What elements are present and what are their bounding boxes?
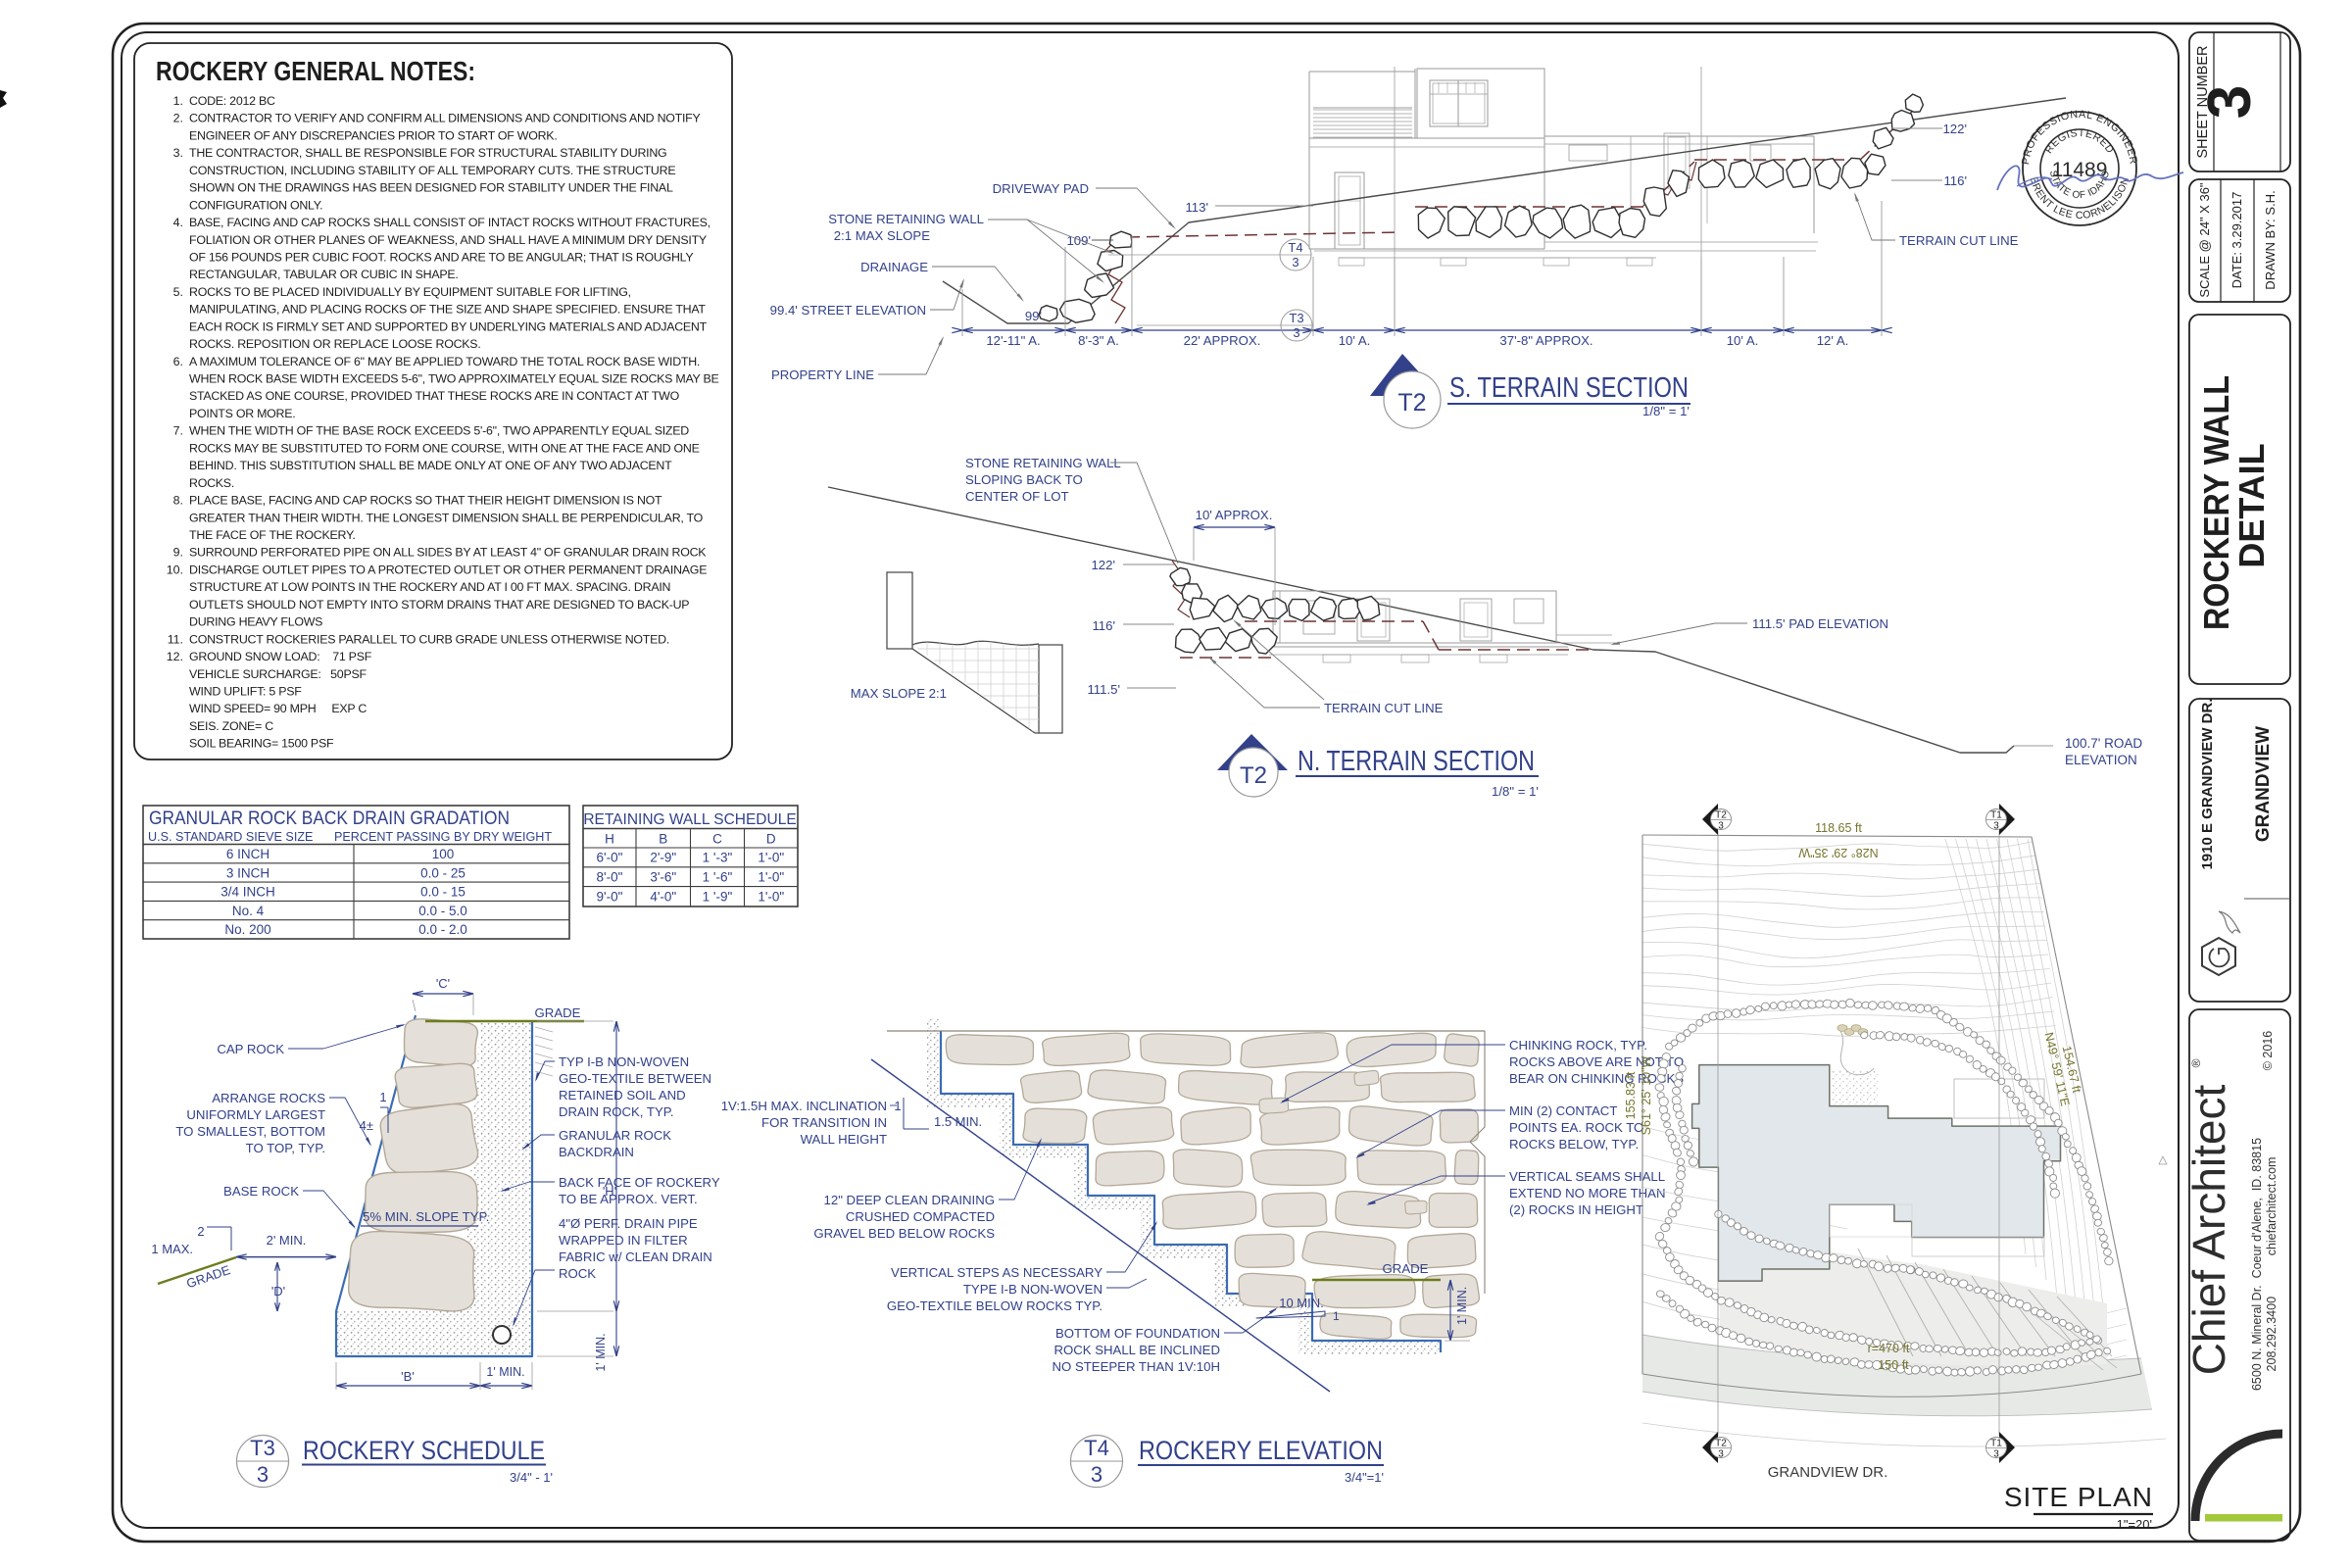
svg-text:SCALE @ 24" X 36": SCALE @ 24" X 36" [2197, 182, 2212, 297]
svg-text:© 2016: © 2016 [2261, 1031, 2275, 1071]
svg-text:BOTTOM OF FOUNDATION: BOTTOM OF FOUNDATION [1055, 1326, 1220, 1341]
svg-text:PERCENT PASSING BY DRY WEIGHT: PERCENT PASSING BY DRY WEIGHT [334, 830, 552, 844]
svg-text:1/8" = 1': 1/8" = 1' [1642, 404, 1690, 418]
svg-text:CAP ROCK: CAP ROCK [217, 1042, 284, 1056]
svg-text:122': 122' [1942, 122, 1967, 136]
svg-text:10' APPROX.: 10' APPROX. [1196, 508, 1273, 522]
svg-text:MIN (2) CONTACT: MIN (2) CONTACT [1509, 1103, 1617, 1118]
svg-text:GROUND SNOW LOAD: 71 PSF: GROUND SNOW LOAD: 71 PSF [189, 650, 372, 663]
svg-text:3/4"=1': 3/4"=1' [1345, 1470, 1384, 1485]
svg-text:STRUCTURE AT LOW POINTS IN THE: STRUCTURE AT LOW POINTS IN THE ROCKERY A… [189, 580, 670, 594]
svg-text:2: 2 [197, 1224, 204, 1239]
svg-text:ROCKS BELOW, TYP.: ROCKS BELOW, TYP. [1509, 1137, 1639, 1151]
svg-text:SEIS. ZONE= C: SEIS. ZONE= C [189, 719, 273, 733]
svg-text:9'-0": 9'-0" [597, 889, 623, 904]
svg-text:PLACE BASE, FACING AND CAP ROC: PLACE BASE, FACING AND CAP ROCKS SO THAT… [189, 494, 662, 508]
svg-text:RETAINED SOIL AND: RETAINED SOIL AND [559, 1088, 686, 1102]
svg-text:10 MIN.: 10 MIN. [1279, 1296, 1324, 1310]
svg-text:1"=20': 1"=20' [2117, 1517, 2152, 1532]
svg-text:3: 3 [1718, 821, 1724, 832]
svg-text:9.: 9. [173, 546, 183, 560]
svg-text:GREATER THAN THEIR WIDTH. THE: GREATER THAN THEIR WIDTH. THE LONGEST DI… [189, 511, 704, 524]
svg-text:100: 100 [432, 847, 455, 861]
svg-text:Chief Architect: Chief Architect [2183, 1084, 2234, 1375]
svg-text:37'-8" APPROX.: 37'-8" APPROX. [1499, 333, 1592, 348]
svg-text:ROCKS TO BE PLACED INDIVIDUALL: ROCKS TO BE PLACED INDIVIDUALLY BY EQUIP… [189, 285, 631, 299]
svg-text:3: 3 [1993, 821, 1999, 832]
svg-text:ROCK SHALL BE INCLINED: ROCK SHALL BE INCLINED [1053, 1343, 1220, 1357]
svg-text:155.83 ft: 155.83 ft [1624, 1071, 1638, 1119]
svg-text:C: C [712, 832, 722, 847]
svg-text:ROCKERY ELEVATION: ROCKERY ELEVATION [1139, 1436, 1383, 1465]
svg-text:SHOWN ON THE DRAWINGS HAS BEEN: SHOWN ON THE DRAWINGS HAS BEEN DESIGNED … [189, 181, 673, 195]
svg-text:DETAIL: DETAIL [2231, 443, 2272, 567]
svg-text:109': 109' [1066, 233, 1091, 248]
svg-text:6.: 6. [173, 355, 183, 368]
svg-text:12" DEEP CLEAN DRAINING: 12" DEEP CLEAN DRAINING [824, 1193, 995, 1207]
svg-text:N. TERRAIN SECTION: N. TERRAIN SECTION [1298, 746, 1535, 777]
svg-text:FABRIC w/ CLEAN DRAIN: FABRIC w/ CLEAN DRAIN [559, 1249, 712, 1264]
svg-text:ELEVATION: ELEVATION [2065, 753, 2137, 767]
svg-text:1'-0": 1'-0" [758, 851, 784, 865]
svg-text:U.S. STANDARD SIEVE SIZE: U.S. STANDARD SIEVE SIZE [148, 830, 313, 844]
svg-text:N28° 29' 35"W: N28° 29' 35"W [1798, 846, 1879, 859]
svg-text:BASE, FACING AND CAP ROCKS SHA: BASE, FACING AND CAP ROCKS SHALL CONSIST… [189, 216, 710, 229]
svg-text:SLOPING BACK TO: SLOPING BACK TO [965, 472, 1083, 487]
svg-text:D: D [766, 832, 776, 847]
svg-text:T2: T2 [1715, 1439, 1727, 1449]
svg-text:GRANDVIEW: GRANDVIEW [2253, 726, 2274, 842]
svg-text:113': 113' [1185, 200, 1208, 215]
svg-text:5% MIN. SLOPE TYP.: 5% MIN. SLOPE TYP. [363, 1209, 489, 1224]
svg-text:1 '-6": 1 '-6" [703, 870, 733, 885]
svg-text:FOLIATION OR OTHER PLANES OF W: FOLIATION OR OTHER PLANES OF WEAKNESS, A… [189, 233, 707, 247]
svg-text:BEHIND. THIS SUBSTITUTION SHAL: BEHIND. THIS SUBSTITUTION SHALL BE MADE … [189, 459, 672, 472]
svg-text:1 '-9": 1 '-9" [703, 889, 733, 904]
svg-text:1: 1 [379, 1090, 386, 1104]
svg-text:116': 116' [1092, 618, 1115, 633]
svg-text:DRIVEWAY PAD: DRIVEWAY PAD [993, 181, 1089, 196]
svg-text:12.: 12. [167, 650, 183, 663]
svg-text:CONFIGURATION ONLY.: CONFIGURATION ONLY. [189, 198, 322, 212]
svg-text:WALL HEIGHT: WALL HEIGHT [801, 1132, 887, 1147]
svg-text:1'-0": 1'-0" [758, 889, 784, 904]
svg-text:CONSTRUCT ROCKERIES PARALLEL T: CONSTRUCT ROCKERIES PARALLEL TO CURB GRA… [189, 632, 669, 646]
svg-text:ROCKS ABOVE ARE NOT TO: ROCKS ABOVE ARE NOT TO [1509, 1054, 1684, 1069]
svg-text:150 ft: 150 ft [1878, 1358, 1909, 1372]
svg-text:ROCKS.: ROCKS. [189, 476, 234, 490]
svg-text:DRAIN ROCK, TYP.: DRAIN ROCK, TYP. [559, 1104, 674, 1119]
svg-text:4.: 4. [173, 216, 183, 229]
svg-text:GRADE: GRADE [535, 1005, 581, 1020]
svg-text:MAX SLOPE 2:1: MAX SLOPE 2:1 [851, 686, 947, 701]
svg-text:1V:1.5H MAX. INCLINATION: 1V:1.5H MAX. INCLINATION [721, 1099, 887, 1113]
svg-text:3: 3 [1091, 1462, 1102, 1487]
svg-text:TO TOP, TYP.: TO TOP, TYP. [246, 1141, 325, 1155]
svg-text:WIND SPEED= 90 MPH EXP C: WIND SPEED= 90 MPH EXP C [189, 702, 367, 715]
svg-text:RETAINING WALL SCHEDULE: RETAINING WALL SCHEDULE [583, 811, 796, 828]
svg-text:PROPERTY LINE: PROPERTY LINE [771, 367, 874, 382]
svg-text:3: 3 [1293, 325, 1299, 340]
svg-text:1'-0": 1'-0" [758, 870, 784, 885]
svg-text:208.292.3400 chiefa: 208.292.3400 chiefarchitect.com [2265, 1157, 2278, 1372]
svg-text:ROCKERY WALL: ROCKERY WALL [2196, 375, 2236, 630]
svg-text:SITE PLAN: SITE PLAN [2004, 1482, 2153, 1512]
svg-text:B: B [659, 832, 667, 847]
svg-text:S61° 25' 10"W: S61° 25' 10"W [1640, 1055, 1653, 1135]
svg-text:GRANDVIEW DR.: GRANDVIEW DR. [1768, 1464, 1888, 1481]
svg-text:4"Ø PERF. DRAIN PIPE: 4"Ø PERF. DRAIN PIPE [559, 1216, 698, 1231]
svg-text:DRAWN BY: S.H.: DRAWN BY: S.H. [2263, 190, 2278, 289]
svg-text:ROCK: ROCK [559, 1266, 596, 1281]
svg-text:EACH ROCK IS FIRMLY SET AND SU: EACH ROCK IS FIRMLY SET AND SUPPORTED BY… [189, 319, 708, 333]
svg-text:T2: T2 [1715, 810, 1727, 821]
svg-text:No. 4: No. 4 [232, 904, 265, 918]
svg-text:8.: 8. [173, 494, 183, 508]
svg-text:1 MAX.: 1 MAX. [151, 1242, 193, 1256]
svg-text:WHEN THE WIDTH OF THE BASE ROC: WHEN THE WIDTH OF THE BASE ROCK EXCEEDS … [189, 424, 689, 438]
svg-text:1' MIN.: 1' MIN. [1455, 1287, 1469, 1325]
svg-text:T4: T4 [1084, 1436, 1109, 1460]
svg-text:4'-0": 4'-0" [650, 889, 676, 904]
svg-text:0.0 - 5.0: 0.0 - 5.0 [418, 904, 467, 918]
svg-text:r=470 ft: r=470 ft [1868, 1342, 1910, 1355]
svg-text:MANIPULATING, AND PLACING ROCK: MANIPULATING, AND PLACING ROCKS OF THE S… [189, 303, 706, 317]
svg-text:1: 1 [1333, 1309, 1340, 1323]
svg-text:WRAPPED IN FILTER: WRAPPED IN FILTER [559, 1233, 688, 1248]
svg-text:T1: T1 [1990, 810, 2002, 821]
svg-text:CODE: 2012 BC: CODE: 2012 BC [189, 94, 275, 108]
svg-text:STACKED AS ONE COURSE, PROVIDE: STACKED AS ONE COURSE, PROVIDED THAT THE… [189, 389, 680, 403]
svg-text:A MAXIMUM TOLERANCE OF 6" MAY: A MAXIMUM TOLERANCE OF 6" MAY BE APPLIED… [189, 355, 700, 368]
svg-text:122': 122' [1091, 558, 1115, 572]
svg-text:WHEN ROCK BASE WIDTH EXCEEDS 5: WHEN ROCK BASE WIDTH EXCEEDS 5-6", TWO A… [189, 372, 719, 386]
svg-text:BACK FACE OF ROCKERY: BACK FACE OF ROCKERY [559, 1175, 720, 1190]
svg-text:0.0 - 25: 0.0 - 25 [420, 865, 465, 880]
svg-text:'D': 'D' [271, 1284, 285, 1298]
svg-text:2:1 MAX SLOPE: 2:1 MAX SLOPE [834, 228, 930, 243]
svg-text:ROCKERY GENERAL NOTES:: ROCKERY GENERAL NOTES: [156, 56, 475, 86]
svg-text:GRANULAR ROCK BACK DRAIN GRADA: GRANULAR ROCK BACK DRAIN GRADATION [149, 808, 510, 829]
svg-text:3/4 INCH: 3/4 INCH [220, 885, 275, 900]
svg-text:CONSTRUCTION, INCLUDING STABIL: CONSTRUCTION, INCLUDING STABILITY OF ALL… [189, 164, 675, 177]
svg-text:0.0 - 15: 0.0 - 15 [420, 885, 465, 900]
svg-text:TERRAIN CUT LINE: TERRAIN CUT LINE [1324, 701, 1444, 715]
svg-text:CHINKING ROCK, TYP.: CHINKING ROCK, TYP. [1509, 1038, 1647, 1053]
svg-text:TO BE APPROX. VERT.: TO BE APPROX. VERT. [559, 1192, 698, 1206]
svg-text:3: 3 [2196, 85, 2264, 119]
svg-text:1/8" = 1': 1/8" = 1' [1492, 784, 1539, 799]
svg-text:3: 3 [257, 1462, 269, 1487]
svg-text:6500 N. Mineral Dr. Coeur d'A: 6500 N. Mineral Dr. Coeur d'Alene, ID. 8… [2250, 1138, 2264, 1391]
svg-text:8'-3" A.: 8'-3" A. [1078, 333, 1119, 348]
svg-text:ROCKS MAY BE SUBSTITUTED TO FO: ROCKS MAY BE SUBSTITUTED TO FORM ONE COU… [189, 441, 700, 455]
svg-text:1' MIN.: 1' MIN. [594, 1333, 608, 1371]
svg-text:'B': 'B' [401, 1369, 415, 1384]
svg-text:ARRANGE ROCKS: ARRANGE ROCKS [212, 1091, 325, 1105]
svg-text:T3: T3 [250, 1436, 275, 1460]
svg-text:CRUSHED COMPACTED: CRUSHED COMPACTED [846, 1209, 995, 1224]
svg-text:GRADE: GRADE [1383, 1261, 1429, 1276]
svg-text:ROCKERY SCHEDULE: ROCKERY SCHEDULE [303, 1436, 545, 1465]
svg-text:1.5 MIN.: 1.5 MIN. [934, 1114, 982, 1129]
svg-text:T3: T3 [1289, 311, 1303, 325]
svg-text:1' MIN.: 1' MIN. [486, 1365, 524, 1379]
svg-text:22' APPROX.: 22' APPROX. [1184, 333, 1261, 348]
svg-text:OUTLETS SHOULD NOT EMPTY INTO: OUTLETS SHOULD NOT EMPTY INTO STORM DRAI… [189, 598, 689, 612]
svg-text:3.: 3. [173, 146, 183, 160]
svg-text:T4: T4 [1288, 240, 1302, 255]
svg-text:SOIL BEARING= 1500 PSF: SOIL BEARING= 1500 PSF [189, 737, 334, 751]
svg-text:3: 3 [1292, 255, 1298, 269]
svg-text:3 INCH: 3 INCH [226, 865, 269, 880]
svg-text:SURROUND PERFORATED PIPE ON AL: SURROUND PERFORATED PIPE ON ALL SIDES BY… [189, 546, 707, 560]
svg-text:BACKDRAIN: BACKDRAIN [559, 1145, 634, 1159]
svg-text:118.65 ft: 118.65 ft [1815, 821, 1862, 835]
svg-text:T1: T1 [1990, 1439, 2002, 1449]
svg-text:POINTS OR MORE.: POINTS OR MORE. [189, 407, 295, 420]
svg-text:GRAVEL BED BELOW ROCKS: GRAVEL BED BELOW ROCKS [813, 1226, 995, 1241]
svg-text:NO STEEPER THAN 1V:10H: NO STEEPER THAN 1V:10H [1053, 1359, 1221, 1374]
svg-text:'C': 'C' [436, 976, 450, 991]
svg-text:CONTRACTOR TO VERIFY AND CONFI: CONTRACTOR TO VERIFY AND CONFIRM ALL DIM… [189, 112, 701, 125]
svg-text:GRANULAR ROCK: GRANULAR ROCK [559, 1128, 671, 1143]
svg-text:ROCKS. REPOSITION OR REPLACE L: ROCKS. REPOSITION OR REPLACE LOOSE ROCKS… [189, 337, 481, 351]
svg-text:1: 1 [894, 1099, 901, 1113]
svg-text:T2: T2 [1240, 762, 1267, 789]
svg-text:10' A.: 10' A. [1339, 333, 1371, 348]
svg-text:TERRAIN CUT LINE: TERRAIN CUT LINE [1899, 233, 2019, 248]
svg-text:8'-0": 8'-0" [597, 870, 623, 885]
svg-text:S. TERRAIN SECTION: S. TERRAIN SECTION [1449, 372, 1689, 404]
svg-text:STONE RETAINING WALL: STONE RETAINING WALL [965, 456, 1121, 470]
svg-text:100.7' ROAD: 100.7' ROAD [2065, 736, 2142, 751]
svg-text:2'-9": 2'-9" [650, 851, 676, 865]
svg-text:T2: T2 [1397, 389, 1426, 416]
svg-text:TO SMALLEST, BOTTOM: TO SMALLEST, BOTTOM [175, 1124, 325, 1139]
svg-text:10.: 10. [167, 563, 183, 576]
svg-text:2' MIN.: 2' MIN. [267, 1233, 307, 1248]
svg-text:TYP I-B NON-WOVEN: TYP I-B NON-WOVEN [559, 1054, 689, 1069]
svg-text:RECTANGULAR, TABULAR OR CUBIC: RECTANGULAR, TABULAR OR CUBIC IN SHAPE. [189, 268, 459, 281]
svg-text:99.4' STREET ELEVATION: 99.4' STREET ELEVATION [770, 303, 926, 318]
svg-text:99': 99' [1025, 309, 1042, 323]
svg-text:2.: 2. [173, 112, 183, 125]
svg-text:11.: 11. [168, 632, 183, 646]
svg-text:1 '-3": 1 '-3" [703, 851, 733, 865]
svg-text:VERTICAL SEAMS SHALL: VERTICAL SEAMS SHALL [1509, 1169, 1665, 1184]
svg-text:UNIFORMLY LARGEST: UNIFORMLY LARGEST [186, 1107, 325, 1122]
svg-text:116': 116' [1943, 173, 1967, 188]
svg-text:3'-6": 3'-6" [650, 870, 676, 885]
svg-text:BASE ROCK: BASE ROCK [223, 1184, 299, 1199]
svg-text:THE CONTRACTOR, SHALL BE RESPO: THE CONTRACTOR, SHALL BE RESPONSIBLE FOR… [189, 146, 666, 160]
svg-text:GEO-TEXTILE BELOW ROCKS TYP.: GEO-TEXTILE BELOW ROCKS TYP. [887, 1298, 1102, 1313]
svg-text:FOR TRANSITION IN: FOR TRANSITION IN [761, 1115, 887, 1130]
svg-text:TYPE I-B NON-WOVEN: TYPE I-B NON-WOVEN [963, 1282, 1102, 1297]
svg-text:11489: 11489 [2052, 159, 2108, 181]
svg-text:THE FACE OF THE ROCKERY.: THE FACE OF THE ROCKERY. [189, 528, 356, 542]
svg-text:3: 3 [1993, 1449, 1999, 1460]
svg-text:DRAINAGE: DRAINAGE [860, 260, 928, 274]
svg-text:ENGINEER OF ANY DISCREPANCIES: ENGINEER OF ANY DISCREPANCIES PRIOR TO S… [189, 128, 558, 142]
svg-text:111.5' PAD ELEVATION: 111.5' PAD ELEVATION [1752, 616, 1888, 631]
svg-text:CENTER OF LOT: CENTER OF LOT [965, 489, 1069, 504]
svg-text:111.5': 111.5' [1087, 682, 1120, 697]
svg-text:VERTICAL STEPS AS NECESSARY: VERTICAL STEPS AS NECESSARY [891, 1265, 1102, 1280]
svg-text:3/4" - 1': 3/4" - 1' [510, 1470, 553, 1485]
svg-text:5.: 5. [173, 285, 183, 299]
svg-text:1.: 1. [173, 94, 183, 108]
svg-text:0.0 - 2.0: 0.0 - 2.0 [418, 922, 467, 937]
svg-text:10' A.: 10' A. [1727, 333, 1759, 348]
svg-text:1910 E GRANDVIEW DR.: 1910 E GRANDVIEW DR. [2199, 698, 2216, 869]
svg-text:12'-11" A.: 12'-11" A. [986, 333, 1040, 348]
svg-text:No. 200: No. 200 [224, 922, 270, 937]
svg-text:3: 3 [1718, 1449, 1724, 1460]
svg-text:OF 156 POUNDS PER CUBIC FOOT.: OF 156 POUNDS PER CUBIC FOOT. ROCKS AND … [189, 251, 693, 265]
svg-text:®: ® [2189, 1058, 2203, 1067]
svg-text:12' A.: 12' A. [1817, 333, 1849, 348]
svg-text:WIND UPLIFT: 5 PSF: WIND UPLIFT: 5 PSF [189, 685, 302, 699]
svg-text:(2) ROCKS IN HEIGHT: (2) ROCKS IN HEIGHT [1509, 1202, 1643, 1217]
svg-text:H: H [605, 832, 614, 847]
svg-text:VEHICLE SURCHARGE: 50PSF: VEHICLE SURCHARGE: 50PSF [189, 667, 367, 681]
svg-text:STONE RETAINING WALL: STONE RETAINING WALL [828, 212, 984, 226]
svg-text:POINTS EA. ROCK TO: POINTS EA. ROCK TO [1509, 1120, 1643, 1135]
svg-text:7.: 7. [173, 424, 183, 438]
svg-text:6 INCH: 6 INCH [226, 847, 269, 861]
svg-text:6'-0": 6'-0" [597, 851, 623, 865]
svg-text:DATE: 3.29.2017: DATE: 3.29.2017 [2229, 192, 2244, 289]
svg-text:GEO-TEXTILE BETWEEN: GEO-TEXTILE BETWEEN [559, 1071, 711, 1086]
svg-text:4±: 4± [360, 1118, 373, 1133]
svg-text:DURING HEAVY FLOWS: DURING HEAVY FLOWS [189, 615, 322, 629]
svg-text:DISCHARGE OUTLET PIPES TO A PR: DISCHARGE OUTLET PIPES TO A PROTECTED OU… [189, 563, 707, 576]
